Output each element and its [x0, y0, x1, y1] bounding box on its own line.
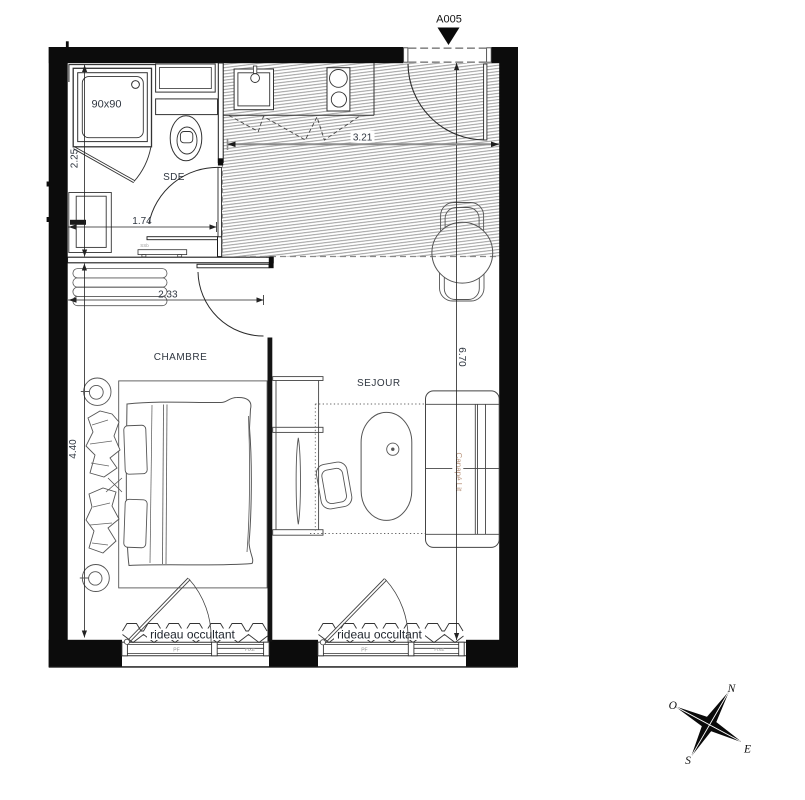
svg-text:E: E [743, 744, 751, 756]
svg-text:Canapé Lit: Canapé Lit [454, 453, 463, 492]
svg-text:6.70: 6.70 [456, 347, 467, 367]
svg-text:2.25: 2.25 [70, 148, 81, 168]
svg-text:90x90: 90x90 [92, 99, 122, 111]
svg-text:FIXE: FIXE [434, 647, 444, 652]
svg-text:CHAMBRE: CHAMBRE [154, 352, 208, 363]
svg-text:PF: PF [361, 648, 367, 654]
svg-text:2.33: 2.33 [158, 290, 178, 301]
svg-text:FIXE: FIXE [245, 647, 255, 652]
svg-text:rideau occultant: rideau occultant [150, 628, 235, 642]
svg-text:A005: A005 [436, 14, 462, 26]
svg-text:1.74: 1.74 [132, 216, 152, 227]
svg-text:O: O [669, 700, 678, 712]
svg-text:SEJOUR: SEJOUR [357, 378, 401, 389]
svg-text:N: N [727, 683, 737, 695]
svg-text:rideau occultant: rideau occultant [337, 628, 422, 642]
svg-text:S: S [685, 755, 691, 767]
svg-text:PF: PF [173, 648, 179, 654]
svg-text:4.40: 4.40 [68, 439, 79, 459]
svg-text:SSb: SSb [140, 243, 149, 248]
svg-text:3.21: 3.21 [353, 133, 373, 144]
